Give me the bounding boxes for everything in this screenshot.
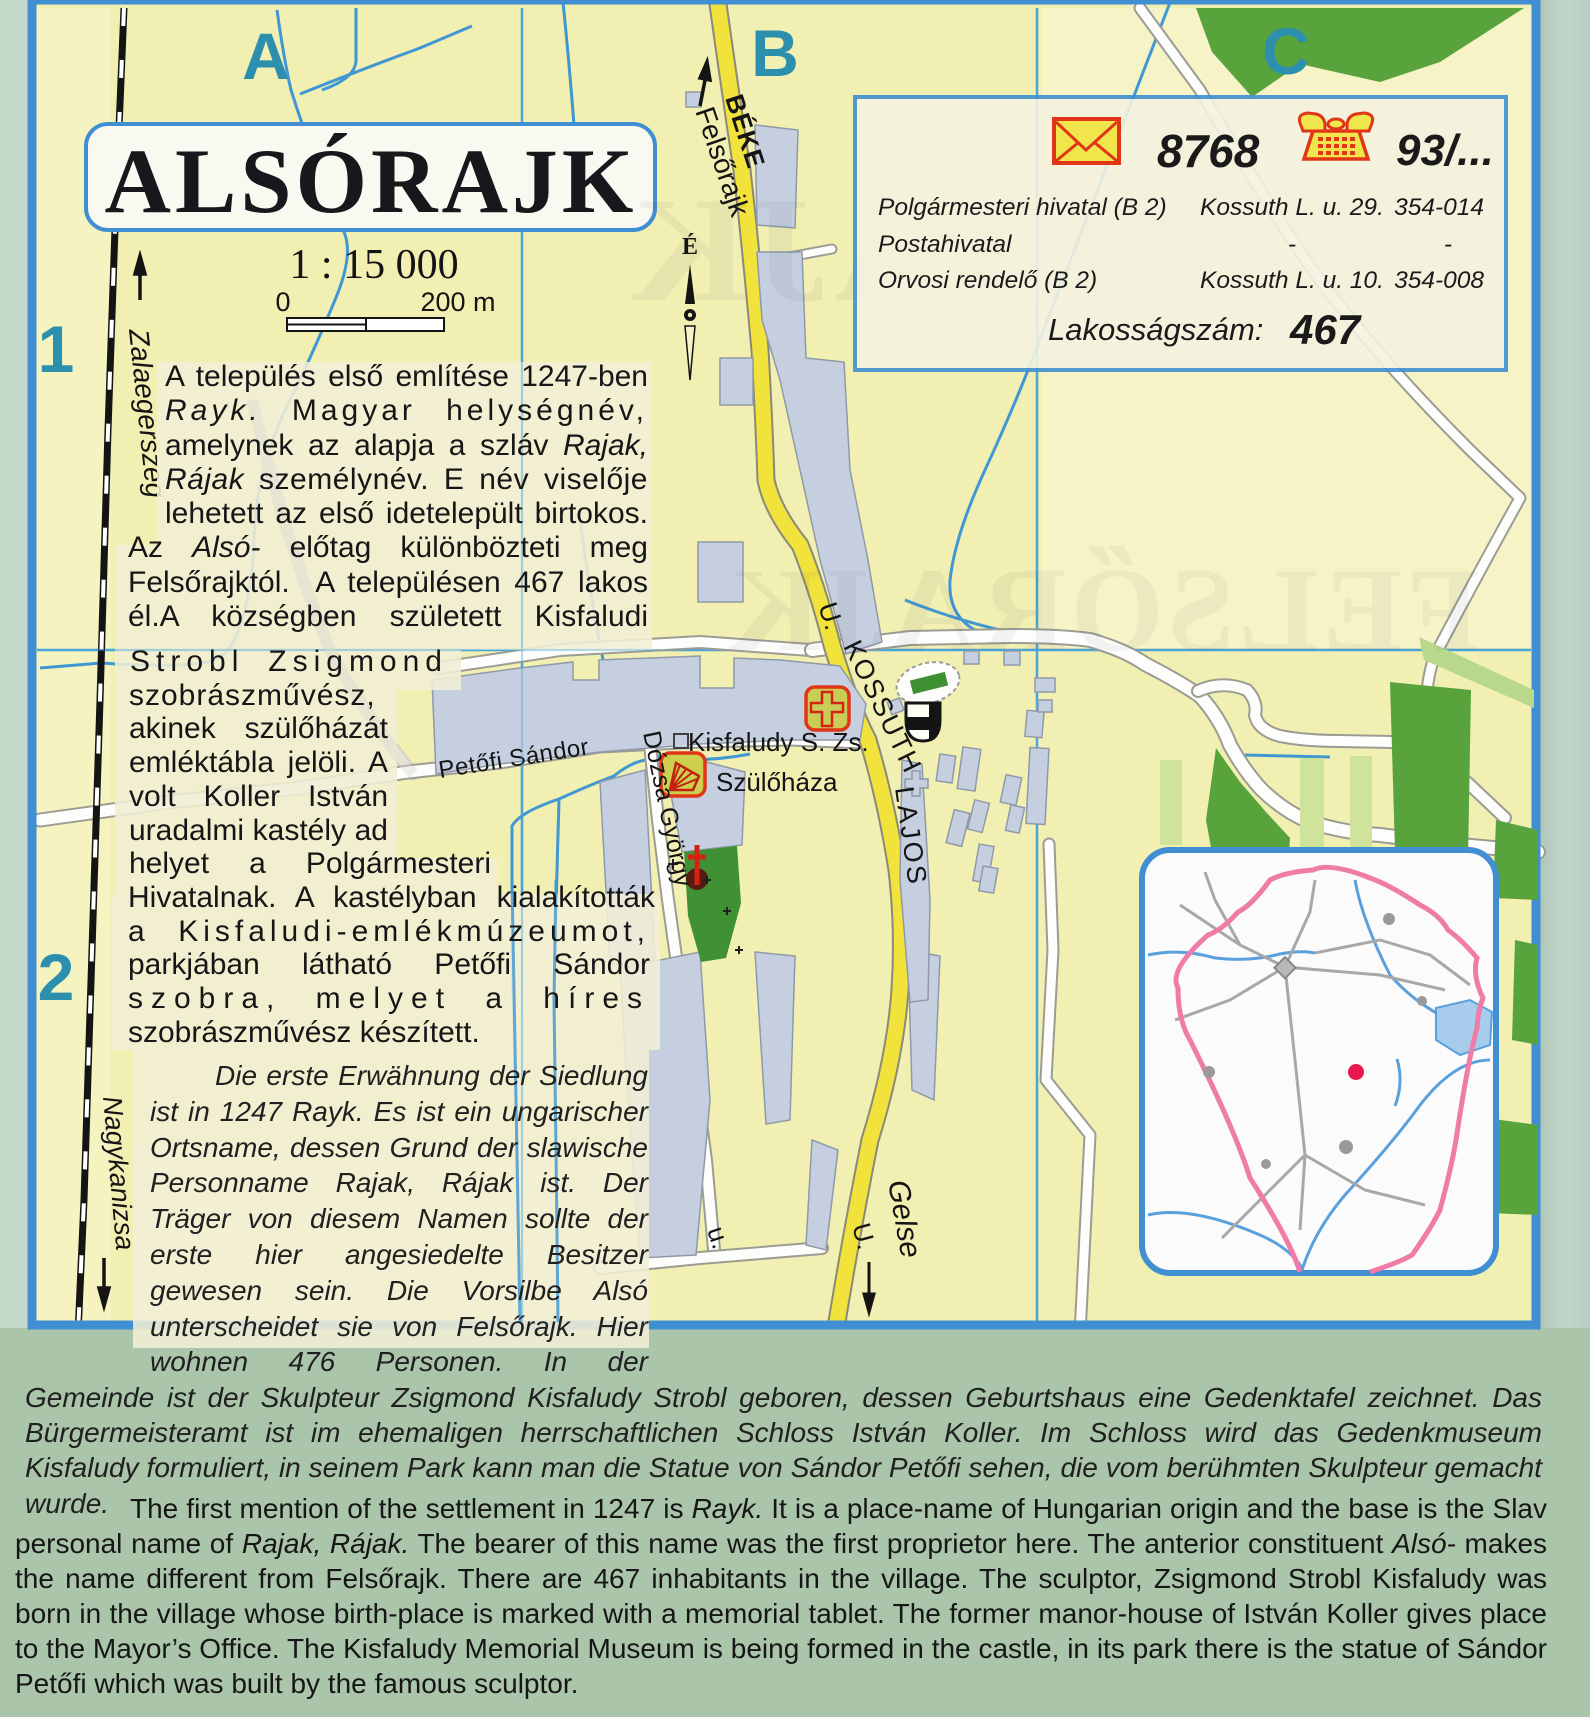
svg-text:FELSŐRAJK: FELSŐRAJK: [724, 543, 1480, 676]
svg-text:Szülőháza: Szülőháza: [716, 767, 838, 797]
svg-text:ALSÓRAJK: ALSÓRAJK: [105, 130, 638, 232]
svg-text:0: 0: [275, 287, 290, 317]
svg-text:1 : 15 000: 1 : 15 000: [289, 242, 458, 288]
svg-text:200 m: 200 m: [420, 287, 495, 317]
svg-text:B: B: [751, 16, 799, 90]
svg-text:1: 1: [38, 312, 75, 386]
svg-text:A: A: [242, 19, 290, 93]
svg-text:C: C: [1262, 14, 1310, 88]
svg-text:2: 2: [38, 940, 75, 1014]
svg-text:Kisfaludy S. Zs.: Kisfaludy S. Zs.: [688, 727, 869, 757]
